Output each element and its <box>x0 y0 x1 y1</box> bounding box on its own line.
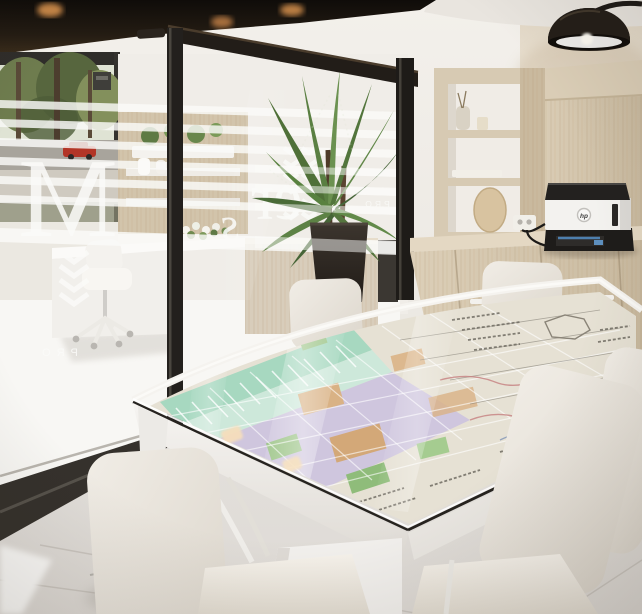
photo-vignette <box>0 0 642 614</box>
scene-canvas: M er s PRO PRO <box>0 0 642 614</box>
photo-office-meeting-room: M er s PRO PRO <box>0 0 642 614</box>
